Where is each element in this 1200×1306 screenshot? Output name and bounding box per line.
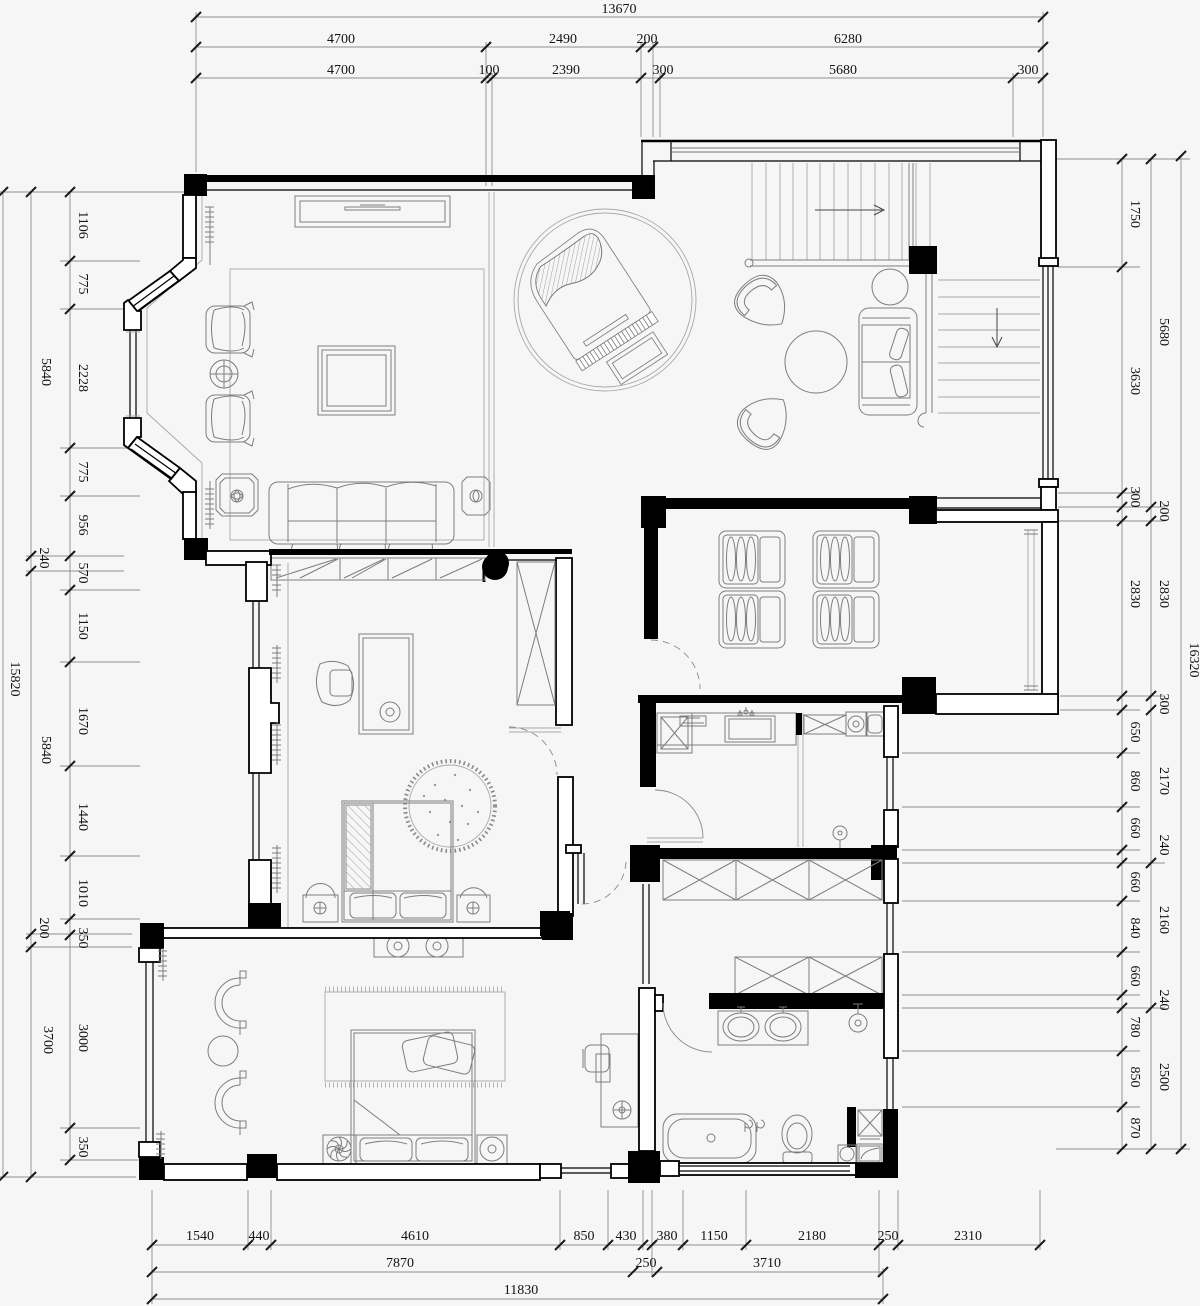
svg-text:2490: 2490 — [549, 32, 577, 47]
svg-text:250: 250 — [878, 1229, 899, 1244]
svg-text:300: 300 — [1018, 63, 1039, 78]
svg-text:2500: 2500 — [1156, 1063, 1171, 1091]
svg-text:240: 240 — [36, 548, 51, 569]
svg-text:3700: 3700 — [40, 1026, 55, 1054]
svg-text:15820: 15820 — [7, 662, 22, 697]
svg-text:3630: 3630 — [1127, 367, 1142, 395]
svg-text:1106: 1106 — [75, 211, 90, 238]
svg-text:780: 780 — [1127, 1017, 1142, 1038]
svg-text:380: 380 — [657, 1229, 678, 1244]
svg-text:11830: 11830 — [504, 1283, 538, 1298]
svg-text:956: 956 — [75, 515, 90, 536]
svg-text:660: 660 — [1127, 818, 1142, 839]
svg-text:860: 860 — [1127, 771, 1142, 792]
svg-text:2310: 2310 — [954, 1229, 982, 1244]
svg-text:300: 300 — [1127, 487, 1142, 508]
svg-text:870: 870 — [1127, 1118, 1142, 1139]
svg-text:5840: 5840 — [38, 358, 53, 386]
svg-text:200: 200 — [36, 918, 51, 939]
svg-text:4700: 4700 — [327, 63, 355, 78]
svg-text:3000: 3000 — [75, 1024, 90, 1052]
svg-text:2228: 2228 — [75, 364, 90, 392]
svg-text:5680: 5680 — [829, 63, 857, 78]
svg-text:2390: 2390 — [552, 63, 580, 78]
svg-text:350: 350 — [75, 928, 90, 949]
svg-text:2180: 2180 — [798, 1229, 826, 1244]
svg-text:1750: 1750 — [1127, 200, 1142, 228]
svg-text:1150: 1150 — [75, 612, 90, 639]
svg-text:1010: 1010 — [75, 879, 90, 907]
svg-text:3710: 3710 — [753, 1256, 781, 1271]
svg-text:430: 430 — [616, 1229, 637, 1244]
svg-text:775: 775 — [75, 462, 90, 483]
svg-text:240: 240 — [1156, 835, 1171, 856]
svg-text:1670: 1670 — [75, 707, 90, 735]
svg-text:4700: 4700 — [327, 32, 355, 47]
svg-text:300: 300 — [653, 63, 674, 78]
svg-text:570: 570 — [75, 563, 90, 584]
svg-text:300: 300 — [1156, 694, 1171, 715]
svg-text:440: 440 — [249, 1229, 270, 1244]
svg-text:100: 100 — [479, 63, 500, 78]
svg-text:200: 200 — [637, 32, 658, 47]
svg-text:1150: 1150 — [700, 1229, 727, 1244]
svg-text:7870: 7870 — [386, 1256, 414, 1271]
svg-text:2160: 2160 — [1156, 906, 1171, 934]
svg-text:850: 850 — [574, 1229, 595, 1244]
svg-text:2830: 2830 — [1127, 580, 1142, 608]
svg-text:16320: 16320 — [1186, 643, 1200, 678]
svg-text:660: 660 — [1127, 966, 1142, 987]
svg-text:2830: 2830 — [1156, 580, 1171, 608]
svg-text:650: 650 — [1127, 722, 1142, 743]
svg-text:1440: 1440 — [75, 803, 90, 831]
svg-text:5840: 5840 — [38, 736, 53, 764]
svg-text:5680: 5680 — [1156, 318, 1171, 346]
svg-text:200: 200 — [1156, 501, 1171, 522]
svg-text:350: 350 — [75, 1137, 90, 1158]
svg-text:250: 250 — [636, 1256, 657, 1271]
svg-text:660: 660 — [1127, 872, 1142, 893]
svg-text:240: 240 — [1156, 990, 1171, 1011]
svg-text:775: 775 — [75, 274, 90, 295]
svg-text:850: 850 — [1127, 1067, 1142, 1088]
svg-text:6280: 6280 — [834, 32, 862, 47]
svg-text:840: 840 — [1127, 918, 1142, 939]
svg-text:1540: 1540 — [186, 1229, 214, 1244]
svg-text:4610: 4610 — [401, 1229, 429, 1244]
svg-text:2170: 2170 — [1156, 767, 1171, 795]
svg-text:13670: 13670 — [602, 2, 637, 17]
